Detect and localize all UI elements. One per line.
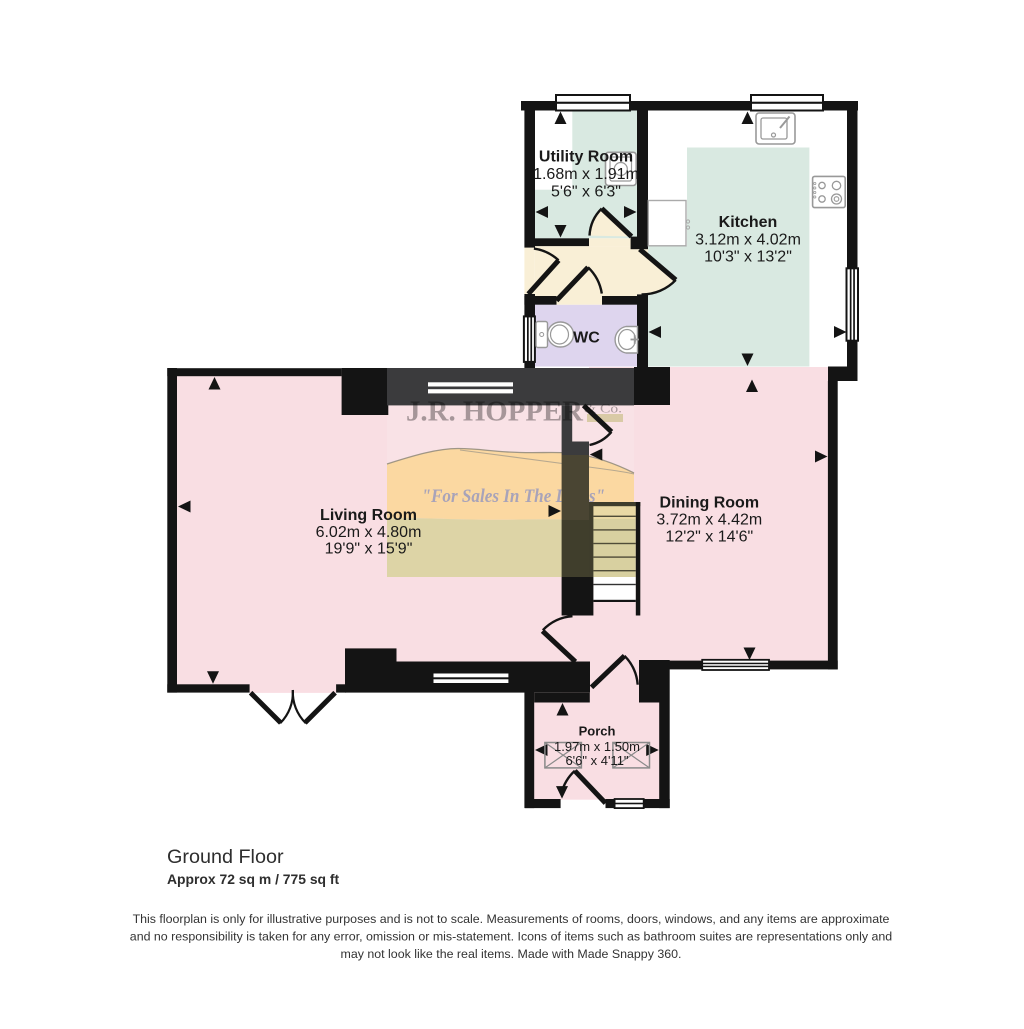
svg-text:1.97m x 1.50m: 1.97m x 1.50m bbox=[554, 739, 640, 754]
svg-text:may not look like the real ite: may not look like the real items. Made w… bbox=[341, 947, 682, 961]
svg-text:WC: WC bbox=[573, 330, 600, 347]
svg-text:Kitchen: Kitchen bbox=[719, 214, 778, 231]
svg-text:12'2" x 14'6": 12'2" x 14'6" bbox=[665, 528, 753, 545]
svg-text:Ground Floor: Ground Floor bbox=[167, 846, 284, 868]
svg-text:5'6" x 6'3": 5'6" x 6'3" bbox=[551, 184, 621, 201]
svg-text:1.68m x 1.91m: 1.68m x 1.91m bbox=[533, 166, 639, 183]
svg-text:This floorplan is only for ill: This floorplan is only for illustrative … bbox=[133, 912, 890, 926]
svg-text:& Co.: & Co. bbox=[584, 401, 622, 416]
svg-text:Porch: Porch bbox=[579, 724, 616, 739]
svg-text:Dining Room: Dining Room bbox=[660, 495, 760, 512]
svg-text:19'9" x 15'9": 19'9" x 15'9" bbox=[325, 541, 413, 558]
svg-text:J.R. HOPPER: J.R. HOPPER bbox=[406, 396, 584, 428]
svg-text:and no responsibility is taken: and no responsibility is taken for any e… bbox=[130, 930, 892, 944]
svg-text:Living Room: Living Room bbox=[320, 507, 417, 524]
svg-text:6.02m x 4.80m: 6.02m x 4.80m bbox=[316, 524, 422, 541]
svg-text:6'6" x 4'11": 6'6" x 4'11" bbox=[565, 753, 628, 768]
svg-text:3.72m x 4.42m: 3.72m x 4.42m bbox=[656, 512, 762, 529]
svg-text:3.12m x 4.02m: 3.12m x 4.02m bbox=[695, 232, 801, 249]
svg-text:Utility Room: Utility Room bbox=[539, 149, 633, 166]
svg-text:10'3" x 13'2": 10'3" x 13'2" bbox=[704, 249, 792, 266]
svg-text:Approx 72 sq m / 775 sq ft: Approx 72 sq m / 775 sq ft bbox=[167, 871, 340, 887]
